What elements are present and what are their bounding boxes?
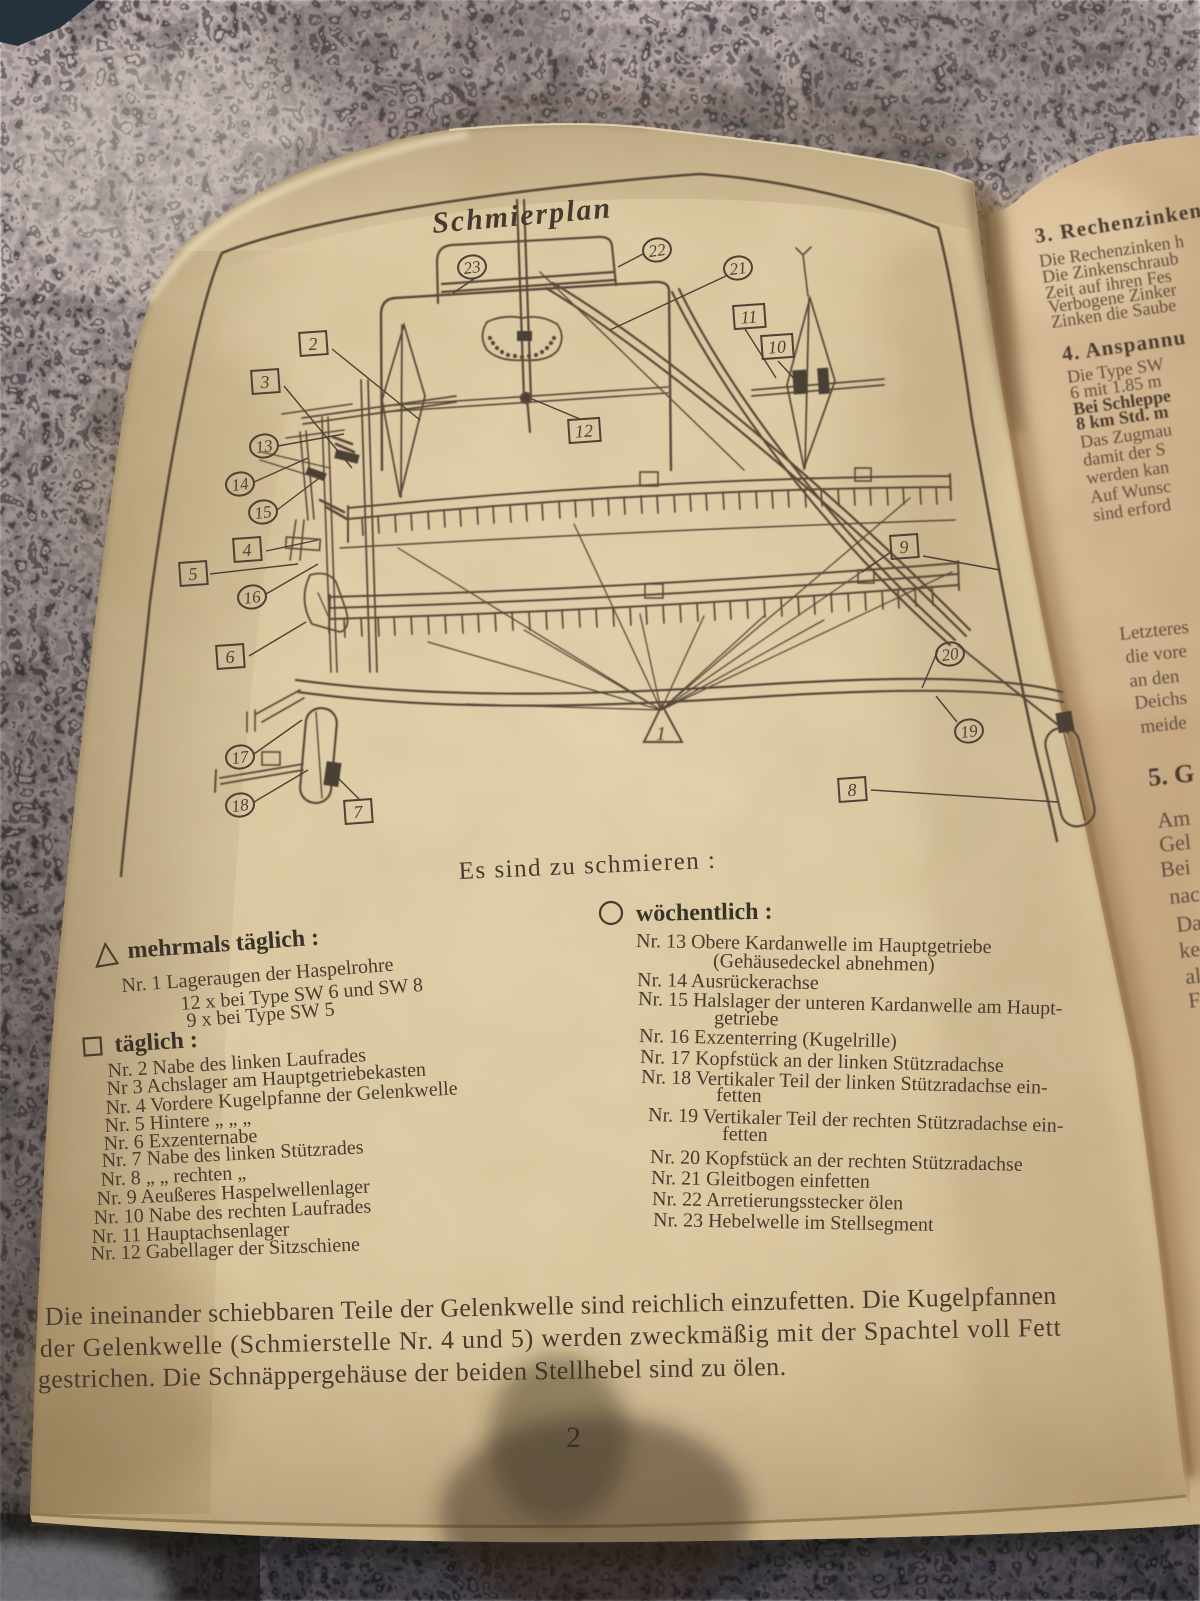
svg-text:14: 14 [230,474,250,495]
svg-text:15: 15 [253,502,272,523]
svg-text:5. G: 5. G [1147,758,1196,792]
svg-text:Gel: Gel [1158,829,1192,857]
svg-text:Da: Da [1175,909,1200,937]
svg-text:2: 2 [308,334,318,355]
svg-text:19: 19 [959,721,979,742]
svg-text:13: 13 [254,436,273,457]
svg-text:21: 21 [728,258,747,279]
svg-text:4: 4 [242,540,252,561]
svg-text:3: 3 [259,372,270,393]
svg-text:1: 1 [656,723,666,745]
svg-text:23: 23 [462,257,481,278]
svg-text:6: 6 [225,647,235,668]
svg-text:fetten: fetten [722,1123,768,1146]
svg-text:5: 5 [188,564,198,585]
svg-text:F: F [1187,987,1200,1013]
svg-text:9: 9 [899,537,909,558]
svg-text:nac: nac [1168,881,1200,909]
svg-text:täglich :: täglich : [114,1027,199,1058]
svg-text:fetten: fetten [716,1084,762,1107]
svg-text:al: al [1184,962,1200,989]
svg-text:20: 20 [940,644,960,665]
svg-text:12: 12 [574,420,593,441]
svg-text:8: 8 [847,780,857,801]
svg-text:wöchentlich :: wöchentlich : [636,899,773,927]
svg-text:11: 11 [740,306,758,327]
svg-text:ke: ke [1178,936,1200,963]
svg-text:Bei: Bei [1159,854,1192,882]
svg-text:22: 22 [647,240,667,261]
svg-text:16: 16 [242,587,262,608]
svg-text:18: 18 [230,795,250,816]
svg-text:10: 10 [767,336,786,357]
